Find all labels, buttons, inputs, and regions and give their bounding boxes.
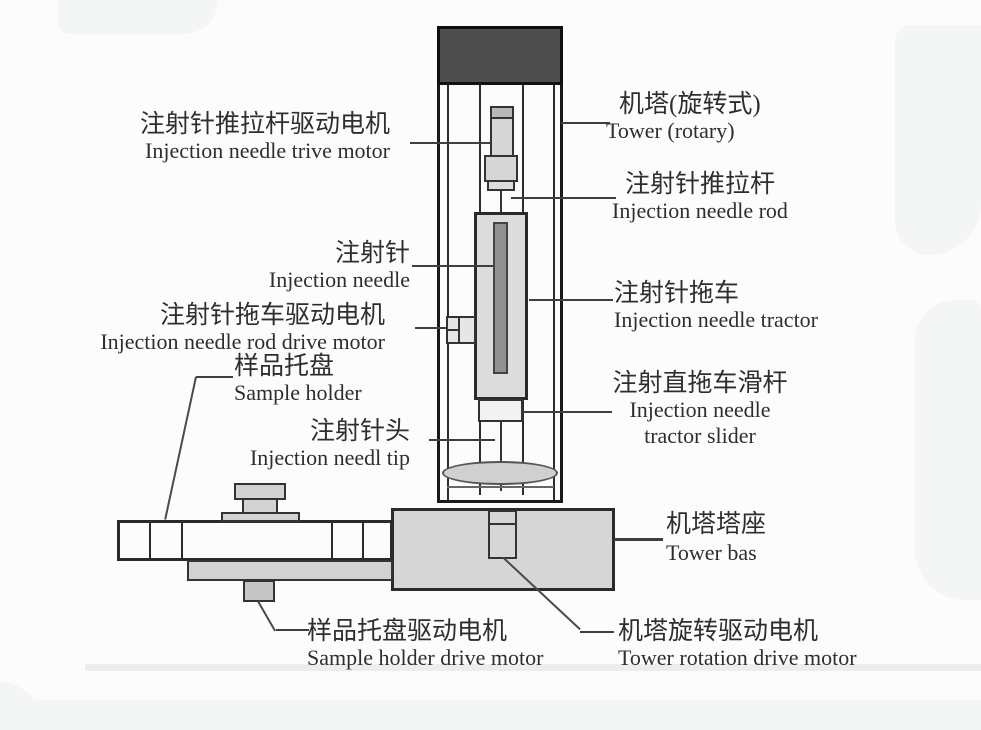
label-tractor-slider-zh: 注射直拖车滑杆: [609, 371, 791, 397]
leader-sample-holder-diag: [164, 377, 197, 520]
label-sample-holder-drive-motor-en: Sample holder drive motor: [307, 645, 543, 671]
label-needle-drive-motor: 注射针推拉杆驱动电机 Injection needle trive motor: [95, 112, 390, 164]
label-sample-holder: 样品托盘 Sample holder: [234, 354, 362, 406]
label-tractor-slider: 注射直拖车滑杆 Injection needle tractor slider: [609, 371, 791, 449]
leader-sample-holder-h: [196, 376, 233, 378]
label-sample-holder-zh: 样品托盘: [234, 354, 362, 380]
tractor-slider-shape: [478, 399, 523, 422]
holder-divider-2: [181, 520, 183, 561]
diagram-canvas: 注射针推拉杆驱动电机 Injection needle trive motor …: [0, 0, 981, 730]
leader-rod-drive-motor: [415, 327, 447, 329]
leader-needle-tractor: [529, 299, 613, 301]
leader-needle-rod: [511, 197, 616, 199]
scan-artifact: [915, 300, 981, 600]
label-needle-zh: 注射针: [238, 241, 410, 267]
label-rod-drive-motor-zh: 注射针拖车驱动电机: [90, 303, 385, 329]
needle-drive-motor-body: [490, 117, 514, 157]
leader-tower-base: [614, 538, 663, 541]
label-tractor-slider-en1: Injection needle: [609, 397, 791, 423]
rod-drive-motor-midline: [446, 329, 459, 331]
label-needle-tip: 注射针头 Injection needl tip: [215, 419, 410, 471]
leader-holder-motor-diag: [257, 601, 276, 631]
label-tower-rotation-drive-motor-zh: 机塔旋转驱动电机: [618, 619, 857, 645]
holder-lower-bar: [187, 560, 393, 581]
leader-needle: [412, 265, 494, 267]
needle-drive-motor-coupling: [484, 155, 518, 182]
needle-drive-motor-plate: [487, 180, 515, 191]
label-needle-rod: 注射针推拉杆 Injection needle rod: [612, 172, 788, 224]
needle-rod-line: [500, 191, 502, 213]
leader-holder-motor-h: [276, 629, 309, 631]
label-needle-drive-motor-zh: 注射针推拉杆驱动电机: [95, 112, 390, 138]
label-tower-rotation-drive-motor: 机塔旋转驱动电机 Tower rotation drive motor: [618, 619, 857, 671]
label-needle-rod-en: Injection needle rod: [612, 198, 788, 224]
label-needle-tractor-en: Injection needle tractor: [614, 307, 818, 333]
tower-cap: [437, 26, 563, 85]
injection-needle-shape: [493, 222, 508, 374]
holder-divider-3: [331, 520, 333, 561]
sample-holder-bar: [117, 520, 393, 561]
scan-artifact: [895, 25, 981, 255]
label-tractor-slider-en2: tractor slider: [609, 423, 791, 449]
scan-artifact: [58, 0, 218, 34]
label-tower-rotary-en: Tower (rotary): [606, 118, 761, 144]
holder-divider-1: [149, 520, 151, 561]
label-tower-rotary: 机塔(旋转式) Tower (rotary): [606, 92, 761, 144]
label-needle-drive-motor-en: Injection needle trive motor: [95, 138, 390, 164]
label-tower-base-en: Tower bas: [666, 539, 766, 567]
label-sample-holder-drive-motor: 样品托盘驱动电机 Sample holder drive motor: [307, 619, 543, 671]
label-sample-holder-en: Sample holder: [234, 380, 362, 406]
label-rod-drive-motor: 注射针拖车驱动电机 Injection needle rod drive mot…: [90, 303, 385, 355]
label-needle-tractor-zh: 注射针拖车: [614, 281, 818, 307]
label-tower-rotary-zh: 机塔(旋转式): [619, 92, 761, 118]
leader-tower-rotary: [561, 122, 610, 124]
lens-base-line: [447, 486, 554, 488]
label-needle-tip-en: Injection needl tip: [215, 445, 410, 471]
rotation-motor-shape: [488, 510, 517, 559]
leader-tractor-slider: [523, 411, 612, 413]
leader-needle-tip: [429, 439, 495, 441]
label-needle-en: Injection needle: [238, 267, 410, 293]
holder-motor-shape: [243, 580, 275, 602]
leader-rotation-motor-h: [580, 631, 614, 633]
scan-band-bottom: [0, 700, 981, 730]
label-needle-rod-zh: 注射针推拉杆: [625, 172, 788, 198]
holder-divider-4: [362, 520, 364, 561]
label-tower-rotation-drive-motor-en: Tower rotation drive motor: [618, 645, 857, 671]
label-needle: 注射针 Injection needle: [238, 241, 410, 293]
label-sample-holder-drive-motor-zh: 样品托盘驱动电机: [307, 619, 543, 645]
label-tower-base-zh: 机塔塔座: [666, 511, 766, 539]
lens-shape: [442, 461, 558, 485]
sample-knob-plate: [221, 512, 300, 522]
label-needle-tractor: 注射针拖车 Injection needle tractor: [614, 281, 818, 333]
leader-needle-drive-motor: [410, 142, 490, 144]
label-needle-tip-zh: 注射针头: [215, 419, 410, 445]
label-rod-drive-motor-en: Injection needle rod drive motor: [90, 329, 385, 355]
label-tower-base: 机塔塔座 Tower bas: [666, 511, 766, 567]
rotation-motor-divider: [488, 523, 517, 525]
